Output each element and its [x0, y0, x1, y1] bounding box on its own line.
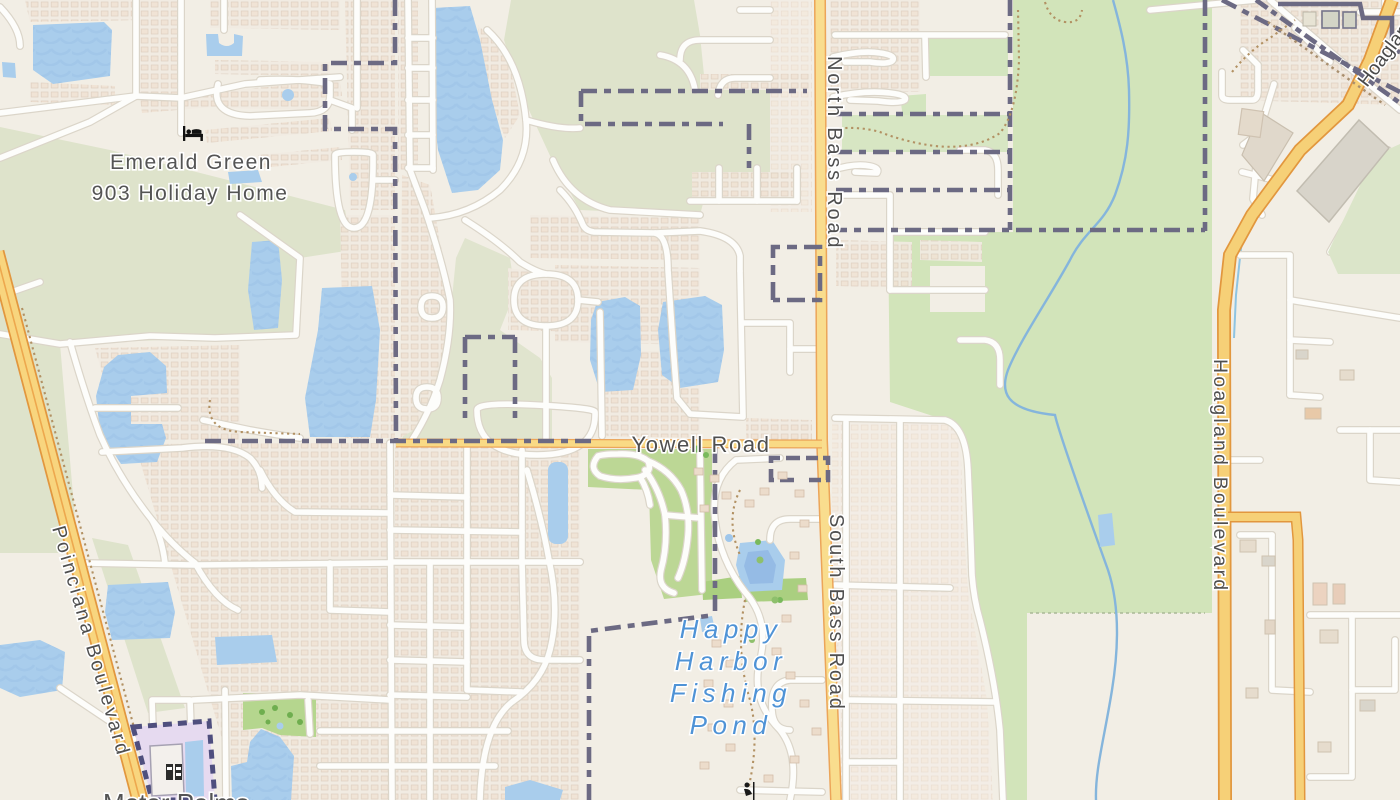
svg-text:Happy: Happy	[680, 614, 783, 644]
svg-text:North Bass Road: North Bass Road	[823, 56, 845, 250]
svg-text:Emerald Green: Emerald Green	[110, 151, 272, 174]
svg-text:South Bass Road: South Bass Road	[825, 514, 847, 712]
svg-text:Pond: Pond	[690, 710, 773, 740]
svg-text:903 Holiday Home: 903 Holiday Home	[92, 182, 289, 205]
svg-text:Fishing: Fishing	[670, 678, 792, 708]
svg-text:Motor Palms: Motor Palms	[103, 788, 249, 800]
svg-text:Yowell Road: Yowell Road	[631, 432, 770, 457]
svg-text:Harbor: Harbor	[675, 646, 787, 676]
svg-text:Hoagland Boulevard: Hoagland Boulevard	[1209, 359, 1231, 593]
